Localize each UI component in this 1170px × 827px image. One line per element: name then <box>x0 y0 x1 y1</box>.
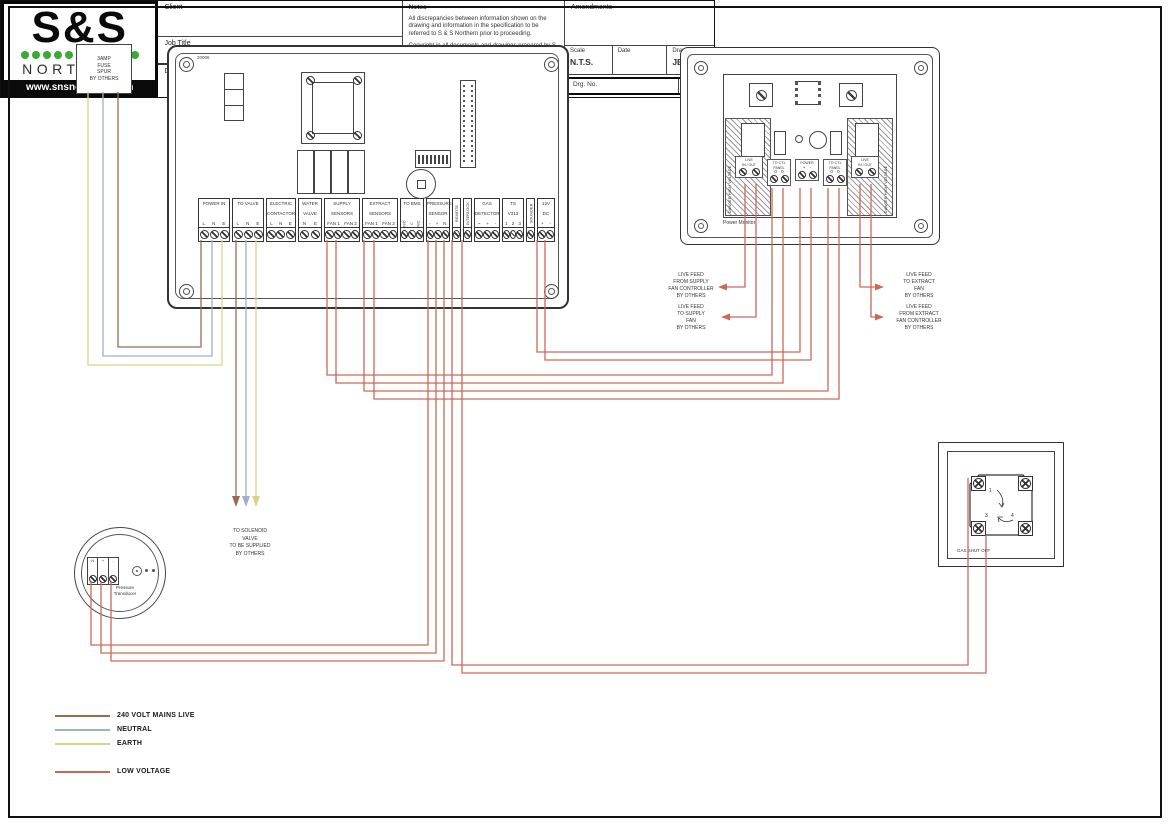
screw-icon <box>809 171 817 179</box>
screw-icon <box>416 230 423 239</box>
note-line: LIVE FEED <box>888 304 950 311</box>
terminal-sub: FAN 1 <box>365 221 378 226</box>
screw-icon <box>286 230 295 239</box>
terminal-screws <box>463 228 472 242</box>
terminal-screws <box>266 228 296 242</box>
terminal-label: TO BMS <box>401 201 423 206</box>
corner-screw-icon <box>914 61 928 75</box>
pin-column <box>471 85 473 163</box>
fuse-spur-box: 3AMP FUSE SPUR BY OTHERS <box>76 44 132 94</box>
terminal-screws <box>796 170 818 179</box>
terminal-group-electric-contactor: ELECTRICCONTACTOR LNE <box>266 198 296 242</box>
screw-icon <box>342 230 351 239</box>
terminal-label: SENSORS <box>325 211 359 216</box>
terminal-group-to-bms: TO BMS N/OCN/C <box>400 198 424 242</box>
power-terminal: POWER + - <box>795 159 819 181</box>
note-line: TO EXTRACT <box>888 279 950 286</box>
screw-icon <box>200 230 209 239</box>
screw-icon <box>516 230 523 239</box>
terminal-sub: 2 <box>512 221 515 226</box>
power-monitor-panel: LIVE IN / OUT TO CT1 PANEL 0 0 POWER + -… <box>680 47 940 245</box>
terminal-screws <box>852 167 878 176</box>
terminal-group-remote: REMOTE <box>452 198 461 242</box>
note-to-solenoid-valve: TO SOLENOID VALVE TO BE SUPPLIED BY OTHE… <box>212 528 288 558</box>
terminal-sub: - <box>113 559 114 563</box>
legend-row: 240 VOLT MAINS LIVE <box>55 711 195 720</box>
ct1-terminal-left: TO CT1 PANEL 0 0 <box>767 159 791 186</box>
screw-icon <box>408 230 415 239</box>
legend-row: LOW VOLTAGE <box>55 767 195 776</box>
terminal-label: DC <box>538 211 554 216</box>
terminal-label: ELECTRIC <box>267 201 295 206</box>
note-line: FAN <box>664 318 718 325</box>
note-line: BY OTHERS <box>664 325 718 332</box>
terminal-group-water-valve: WATERVALVE NE <box>298 198 322 242</box>
note-line: FAN <box>888 286 950 293</box>
legend-row: EARTH <box>55 739 195 748</box>
dip-cell-icon <box>446 155 449 164</box>
note-line: FROM SUPPLY <box>664 279 718 286</box>
note-line: BY OTHERS <box>888 325 950 332</box>
note-live-feed-from-supply: LIVE FEED FROM SUPPLY FAN CONTROLLER BY … <box>664 272 718 300</box>
corner-screw-icon <box>179 284 194 299</box>
screw-icon <box>427 230 434 239</box>
terminal-sub: - <box>495 221 497 226</box>
dip-cell-icon <box>422 155 425 164</box>
screw-icon <box>372 230 381 239</box>
legend-label: 240 VOLT MAINS LIVE <box>117 712 195 719</box>
valve-screw-icon <box>1018 476 1033 491</box>
transducer-label-line: Transducer <box>103 591 147 597</box>
valve-terminal-number: 4 <box>1011 513 1014 519</box>
screw-icon <box>739 168 747 176</box>
screw-icon <box>752 168 760 176</box>
terminal-group-extract-sensors: EXTRACTSENSORS FAN 1FAN 2 <box>362 198 398 242</box>
screw-icon <box>89 575 97 583</box>
terminal-label: SUPPLY <box>325 201 359 206</box>
dip-cell-icon <box>426 155 429 164</box>
led-icon <box>795 135 803 143</box>
gas-shutoff-valve-box: 1 3 4 GAS SHUT OFF <box>938 442 1064 567</box>
valve-screw-icon <box>971 476 986 491</box>
terminal-label: INTERLOCK <box>465 202 470 225</box>
screw-icon <box>464 230 471 239</box>
screw-icon <box>770 175 778 183</box>
terminal-sub: ~ <box>478 221 481 226</box>
danger-high-voltage-label: DANGER HIGH VOLTAGE <box>728 166 732 213</box>
screw-icon <box>267 230 276 239</box>
terminal-screws <box>426 228 450 242</box>
screw-icon <box>826 175 834 183</box>
terminal-sub: L <box>270 221 273 226</box>
note-line: FROM EXTRACT <box>888 311 950 318</box>
screw-icon <box>389 230 398 239</box>
terminal-sub: N <box>246 221 249 226</box>
power-monitor-label: Power Monitor <box>723 220 755 226</box>
terminal-screws <box>324 228 360 242</box>
screw-icon <box>868 168 876 176</box>
screw-icon <box>254 230 263 239</box>
terminal-screws <box>452 228 461 242</box>
terminal-sub: FAN 1 <box>327 221 340 226</box>
relay-terminal-supply: LIVE IN / OUT <box>735 156 763 178</box>
terminal-screws <box>474 228 500 242</box>
legend-label: NEUTRAL <box>117 726 152 733</box>
terminal-sub: + <box>102 559 104 563</box>
corner-screw-icon <box>914 219 928 233</box>
terminal-label: PRESSURE <box>427 201 449 206</box>
legend-row: NEUTRAL <box>55 725 195 734</box>
terminal-sub: N <box>91 559 94 563</box>
terminal-screws <box>502 228 524 242</box>
transducer-terminals: N + - <box>87 557 119 585</box>
relay <box>741 123 765 157</box>
buzzer-icon <box>406 169 436 199</box>
terminal-sub: + <box>541 221 544 226</box>
screw-icon <box>306 131 315 140</box>
terminal-label: CONTACTOR <box>267 211 295 216</box>
note-line: FAN CONTROLLER <box>888 318 950 325</box>
note-line: BY OTHERS <box>888 293 950 300</box>
screw-icon <box>311 230 320 239</box>
terminal-sub: L <box>237 221 240 226</box>
note-line: BY OTHERS <box>212 551 288 559</box>
capacitor <box>774 131 786 155</box>
danger-high-voltage-label: DANGER HIGH VOLTAGE <box>884 166 888 213</box>
terminal-screws <box>537 228 555 242</box>
terminal-sub: C <box>410 222 415 225</box>
terminal-group-power-in: POWER IN LNE <box>198 198 230 242</box>
terminal-sub: 3 <box>518 221 521 226</box>
transducer-dot-icon <box>145 569 148 572</box>
valve-terminal-number: 3 <box>985 513 988 519</box>
note-line: TO SOLENOID <box>212 528 288 536</box>
legend-line-low-voltage <box>55 771 110 773</box>
relay-terminal-extract: LIVE IN / OUT <box>851 156 879 178</box>
note-live-feed-to-supply: LIVE FEED TO SUPPLY FAN BY OTHERS <box>664 304 718 332</box>
screw-icon <box>798 171 806 179</box>
terminal-sub: E <box>222 221 225 226</box>
note-line: VALVE <box>212 536 288 544</box>
screw-icon <box>434 230 441 239</box>
screw-icon <box>300 230 309 239</box>
screw-icon <box>442 230 449 239</box>
screw-icon <box>527 230 534 239</box>
terminal-group-12v-dc: 12VDC +- <box>537 198 555 242</box>
ct1-terminal-right: TO CT1 PANEL 0 0 <box>823 159 847 186</box>
terminal-label: VALVE <box>299 211 321 216</box>
screw-icon <box>325 230 334 239</box>
terminal-label: SENSORS <box>363 211 397 216</box>
terminal-screws <box>198 228 230 242</box>
fuse-spur-line: BY OTHERS <box>90 76 119 83</box>
relay <box>331 150 348 194</box>
terminal-group-interlock: INTERLOCK <box>463 198 472 242</box>
terminal-sub: E <box>256 221 259 226</box>
buzzer-icon <box>809 131 827 149</box>
screw-icon <box>538 230 546 239</box>
valve-screw-icon <box>971 521 986 536</box>
terminal-sub: + <box>436 221 439 226</box>
terminal-strip: POWER IN LNE TO VALVE LNE ELECTRICCONTAC… <box>198 198 555 242</box>
legend-line-mains <box>55 715 110 717</box>
terminal-sub: N <box>279 221 282 226</box>
relay <box>297 150 314 194</box>
corner-screw-icon <box>694 61 708 75</box>
legend-line-earth <box>55 743 110 745</box>
screw-icon <box>220 230 229 239</box>
terminal-group-sounder: SOUNDER <box>526 198 535 242</box>
terminal-sub: E <box>314 221 317 226</box>
terminal-screws <box>232 228 264 242</box>
terminal-sub: N <box>443 221 446 226</box>
terminal-sub: L <box>203 221 206 226</box>
screw-icon <box>837 175 845 183</box>
terminal-label: 12V <box>538 201 554 206</box>
relay <box>348 150 365 194</box>
transformer-core <box>312 82 354 134</box>
screw-icon <box>380 230 389 239</box>
note-line: TO BE SUPPLIED <box>212 543 288 551</box>
screw-icon <box>244 230 253 239</box>
note-line: FAN CONTROLLER <box>664 286 718 293</box>
screw-icon <box>453 230 460 239</box>
terminal-label: POWER IN <box>199 201 229 206</box>
terminal-label: WATER <box>299 201 321 206</box>
fuse-holder <box>224 73 244 121</box>
note-line: BY OTHERS <box>664 293 718 300</box>
main-control-panel: 20006 POWER IN LNE TO VALVE <box>167 45 569 309</box>
wire-legend: 240 VOLT MAINS LIVE NEUTRAL EARTH LOW VO… <box>55 706 195 776</box>
terminal-screws <box>736 167 762 176</box>
terminal-label: REMOTE <box>454 204 459 221</box>
terminal-sub: N/C <box>416 220 421 226</box>
wiring-diagram-sheet: 3AMP FUSE SPUR BY OTHERS 20006 <box>0 0 1170 827</box>
terminal-label: V313 <box>503 211 523 216</box>
potentiometer-icon <box>749 83 773 107</box>
transducer-terminal: - <box>109 558 118 584</box>
terminal-group-supply-sensors: SUPPLYSENSORS FAN 1FAN 2 <box>324 198 360 242</box>
terminal-sub: - <box>429 221 431 226</box>
pressure-transducer: N + - Pressure Transducer <box>74 527 166 619</box>
terminal-label: SOUNDER <box>528 203 533 223</box>
pin-column <box>463 85 465 163</box>
screw-icon <box>510 230 517 239</box>
screw-icon <box>99 575 107 583</box>
terminal-group-ts-v313: TSV313 123 <box>502 198 524 242</box>
terminal-sub: N/O <box>403 220 408 226</box>
note-line: LIVE FEED <box>888 272 950 279</box>
terminal-label: TO VALVE <box>233 201 263 206</box>
dip-cell-icon <box>418 155 421 164</box>
valve-terminal-number: 1 <box>989 488 992 494</box>
terminal-screws <box>298 228 322 242</box>
screw-icon <box>234 230 243 239</box>
note-line: LIVE FEED <box>664 272 718 279</box>
terminal-sub: N <box>212 221 215 226</box>
note-line: LIVE FEED <box>664 304 718 311</box>
transformer <box>301 72 365 144</box>
screw-icon <box>306 76 315 85</box>
terminal-label: TS <box>503 201 523 206</box>
dip-switch <box>415 150 451 168</box>
transducer-dot-icon <box>152 569 155 572</box>
legend-line-neutral <box>55 729 110 731</box>
note-live-feed-from-extract: LIVE FEED FROM EXTRACT FAN CONTROLLER BY… <box>888 304 950 332</box>
screw-icon <box>353 76 362 85</box>
gas-shutoff-label: GAS SHUT OFF <box>957 548 990 553</box>
screw-icon <box>210 230 219 239</box>
legend-label: EARTH <box>117 740 142 747</box>
screw-icon <box>855 168 863 176</box>
corner-screw-icon <box>694 219 708 233</box>
screw-icon <box>546 230 554 239</box>
dip-cell-icon <box>438 155 441 164</box>
terminal-screws <box>526 228 535 242</box>
terminal-sub: 1 <box>505 221 508 226</box>
dip-cell-icon <box>434 155 437 164</box>
screw-icon <box>276 230 285 239</box>
terminal-group-to-valve: TO VALVE LNE <box>232 198 264 242</box>
terminal-label: SENSOR <box>427 211 449 216</box>
potentiometer-icon <box>839 83 863 107</box>
terminal-label: EXTRACT <box>363 201 397 206</box>
pin-connector <box>460 80 476 168</box>
screw-icon <box>491 230 499 239</box>
note-line: TO SUPPLY <box>664 311 718 318</box>
terminal-label: DETECTOR <box>475 211 499 216</box>
screw-icon <box>353 131 362 140</box>
screw-icon <box>109 575 117 583</box>
screw-icon <box>351 230 360 239</box>
terminal-sub: - <box>550 221 552 226</box>
capacitor <box>830 131 842 155</box>
transducer-label: Pressure Transducer <box>103 585 147 596</box>
terminal-sub: FAN 2 <box>344 221 357 226</box>
legend-label: LOW VOLTAGE <box>117 768 170 775</box>
transducer-port-icon <box>132 566 142 576</box>
screw-icon <box>503 230 510 239</box>
terminal-sub: + <box>486 221 489 226</box>
relay <box>314 150 331 194</box>
note-live-feed-to-extract: LIVE FEED TO EXTRACT FAN BY OTHERS <box>888 272 950 300</box>
screw-icon <box>363 230 372 239</box>
terminal-sub: N <box>303 221 306 226</box>
ic-chip <box>795 81 821 105</box>
terminal-screws <box>362 228 398 242</box>
dip-cell-icon <box>430 155 433 164</box>
screw-icon <box>475 230 483 239</box>
terminal-group-gas-detector: GASDETECTOR ~+- <box>474 198 500 242</box>
board-number: 20006 <box>197 55 210 60</box>
terminal-sub: FAN 2 <box>382 221 395 226</box>
corner-screw-icon <box>179 57 194 72</box>
dip-cell-icon <box>442 155 445 164</box>
transducer-terminal: N <box>88 558 98 584</box>
transducer-terminal: + <box>98 558 108 584</box>
screw-icon <box>334 230 343 239</box>
terminal-group-pressure-sensor: PRESSURESENSOR -+N <box>426 198 450 242</box>
valve-screw-icon <box>1018 521 1033 536</box>
terminal-screws <box>400 228 424 242</box>
screw-icon <box>401 230 408 239</box>
relay <box>855 123 879 157</box>
terminal-sub: E <box>289 221 292 226</box>
terminal-screws <box>768 175 790 184</box>
terminal-screws <box>824 175 846 184</box>
corner-screw-icon <box>544 284 559 299</box>
screw-icon <box>781 175 789 183</box>
screw-icon <box>483 230 491 239</box>
corner-screw-icon <box>544 57 559 72</box>
terminal-label: GAS <box>475 201 499 206</box>
